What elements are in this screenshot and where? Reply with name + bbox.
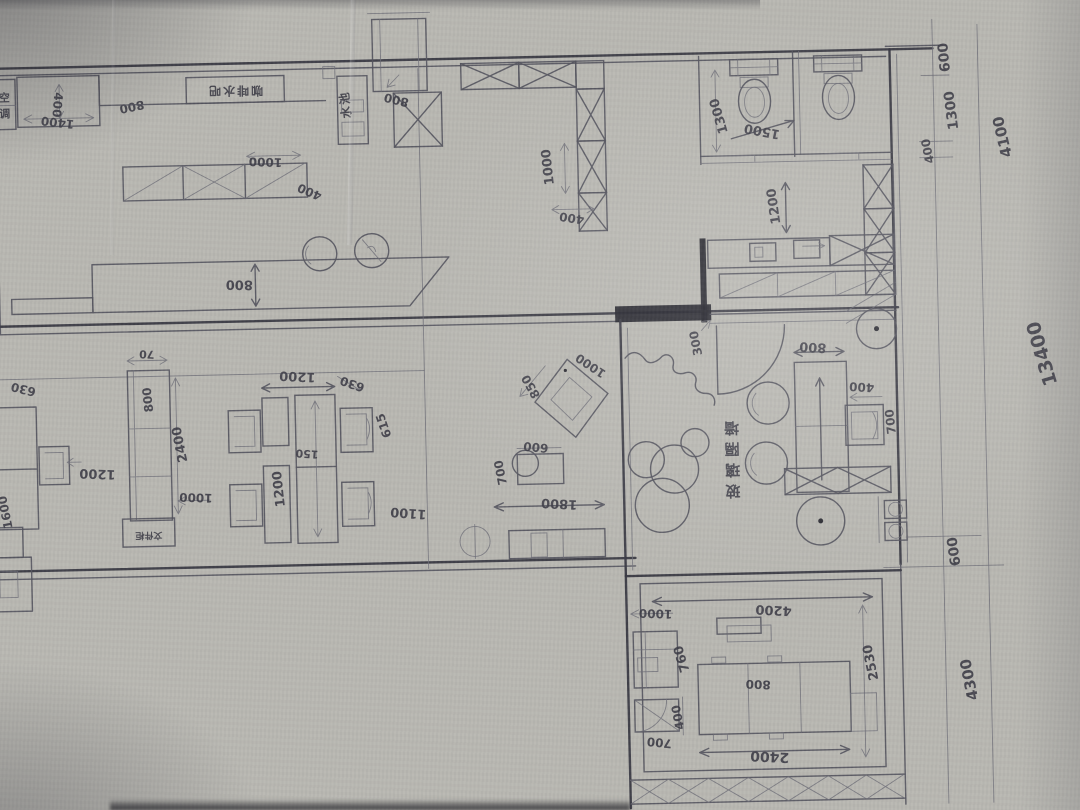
dim-meet-cab: 760 (671, 644, 693, 674)
dim-pod-1100: 1100 (390, 504, 427, 521)
left-desks: 630 1600 1200 (0, 377, 119, 612)
dim-cabinet-depth: 400 (49, 92, 65, 118)
sink-label: 水池 (336, 90, 354, 119)
main-walls (0, 48, 949, 810)
flue-and-column: 800 (368, 12, 443, 148)
dim-pod-1200: 1200 (279, 367, 316, 384)
dim-aisle-1000: 1000 (179, 490, 213, 505)
dim-chair-630: 630 (338, 373, 366, 394)
dim-counter-depth: 800 (118, 97, 145, 116)
dim-chair-615: 615 (373, 412, 394, 440)
dim-edge-600-mid: 600 (944, 536, 964, 567)
sink-station: 水池 (323, 66, 369, 145)
dim-lounge-table: 800 (799, 338, 827, 355)
dim-edge-1300: 1300 (941, 90, 962, 131)
glass-wall-label-4: 玻 (724, 482, 740, 500)
dim-edge-4100: 4100 (989, 115, 1016, 160)
dim-aisle-left: 1200 (79, 465, 116, 481)
dim-partition-length: 1000 (539, 148, 558, 186)
round-chairs (744, 382, 791, 485)
ac-label-char1: 空 (0, 90, 10, 104)
dim-small-600: 600 (523, 439, 549, 455)
dim-wc-depth: 1300 (707, 96, 732, 135)
dim-left-desk: 1600 (0, 495, 16, 530)
reception-counter: 800 (10, 232, 449, 315)
tea-area: 空 调 400 1400 800 咖啡水吧 (0, 71, 326, 133)
dim-pod-l-1200: 1200 (270, 470, 289, 508)
dim-seg700: 700 (646, 734, 672, 750)
dim-table-len: 2400 (750, 747, 790, 765)
dim-side-table-d: 700 (882, 408, 899, 434)
bottom-hatch-strip (630, 774, 905, 804)
floor-plan-drawing: 空 调 400 1400 800 咖啡水吧 水池 800 1000 400 (0, 0, 1080, 810)
dim-partition-depth: 400 (558, 209, 585, 227)
hatched-partition: 1000 400 (461, 61, 608, 234)
file-cabinet-label: 文件柜 (135, 530, 163, 542)
dim-wall-seg: 300 (687, 330, 706, 357)
basin-2 (794, 240, 820, 259)
dim-wc-width: 1500 (743, 120, 781, 141)
ac-label-char2: 调 (0, 106, 10, 120)
lounge-cabinet (785, 466, 892, 494)
dim-cabinet-length: 1400 (40, 114, 75, 132)
dim-wc-lobby: 1200 (764, 187, 784, 225)
basin-counter (708, 238, 831, 269)
dim-table-seg: 800 (745, 677, 770, 692)
dim-meet-width: 4200 (755, 601, 792, 618)
lower-bench (509, 529, 606, 559)
toilet-2 (814, 55, 863, 120)
square-table-rotated: 1000 850 (518, 350, 610, 438)
meeting-room: 4200 1000 2530 760 800 400 700 (626, 578, 906, 804)
entry-door: 300 (686, 319, 786, 395)
service-shaft (843, 164, 896, 323)
dim-gap-150: 150 (295, 446, 319, 460)
wall-fixtures (878, 496, 907, 543)
dark-wall-segment (615, 304, 711, 322)
dim-left-chair: 630 (10, 379, 38, 399)
zone-1800: 1800 (459, 493, 605, 559)
stool (302, 236, 337, 271)
dim-sq-1000: 1000 (573, 351, 609, 381)
dim-zone-1800: 1800 (541, 495, 578, 512)
desk-pod: 1200 630 615 150 1200 1100 (227, 364, 427, 544)
meet-cabinet (633, 631, 678, 688)
wall-shelf-strip: 1000 400 (123, 151, 325, 208)
dimension-chain-right: 600 1300 400 4100 13400 600 4300 (872, 17, 1071, 805)
dim-cab-70: 70 (139, 347, 155, 361)
glass-wall-label-2: 隔 (724, 440, 739, 458)
dim-shelf-length: 1000 (249, 154, 283, 169)
conference-table (697, 615, 878, 741)
floor-plan-photo: 空 调 400 1400 800 咖啡水吧 水池 800 1000 400 (0, 0, 1080, 810)
dim-small-700: 700 (491, 459, 510, 486)
dim-meet-inset: 1000 (639, 606, 673, 621)
dim-shelf-depth: 400 (295, 180, 324, 203)
bar-counter-label: 咖啡水吧 (207, 83, 263, 98)
dim-side-table-w: 400 (849, 379, 875, 395)
dim-sq-850: 850 (519, 372, 543, 401)
glass-wall-label-3: 璃 (725, 461, 740, 479)
dim-seg400: 400 (669, 704, 688, 731)
dim-cab-800: 800 (140, 387, 157, 413)
glass-wall-label-1: 墙 (724, 419, 739, 437)
dim-cab-2400: 2400 (170, 425, 192, 463)
toilet-1 (730, 59, 779, 124)
side-table: 400 700 (845, 378, 900, 445)
lounge-room: 墙 隔 璃 玻 800 400 70 (624, 308, 907, 549)
pebble-decor (628, 428, 711, 533)
dim-counter2-depth: 800 (226, 276, 253, 291)
dim-edge-4300: 4300 (956, 657, 982, 701)
small-table: 600 700 (491, 438, 564, 486)
dim-total-13400: 13400 (1023, 319, 1063, 389)
dim-edge-600-top: 600 (935, 42, 954, 73)
curtain-squiggle (625, 351, 715, 407)
